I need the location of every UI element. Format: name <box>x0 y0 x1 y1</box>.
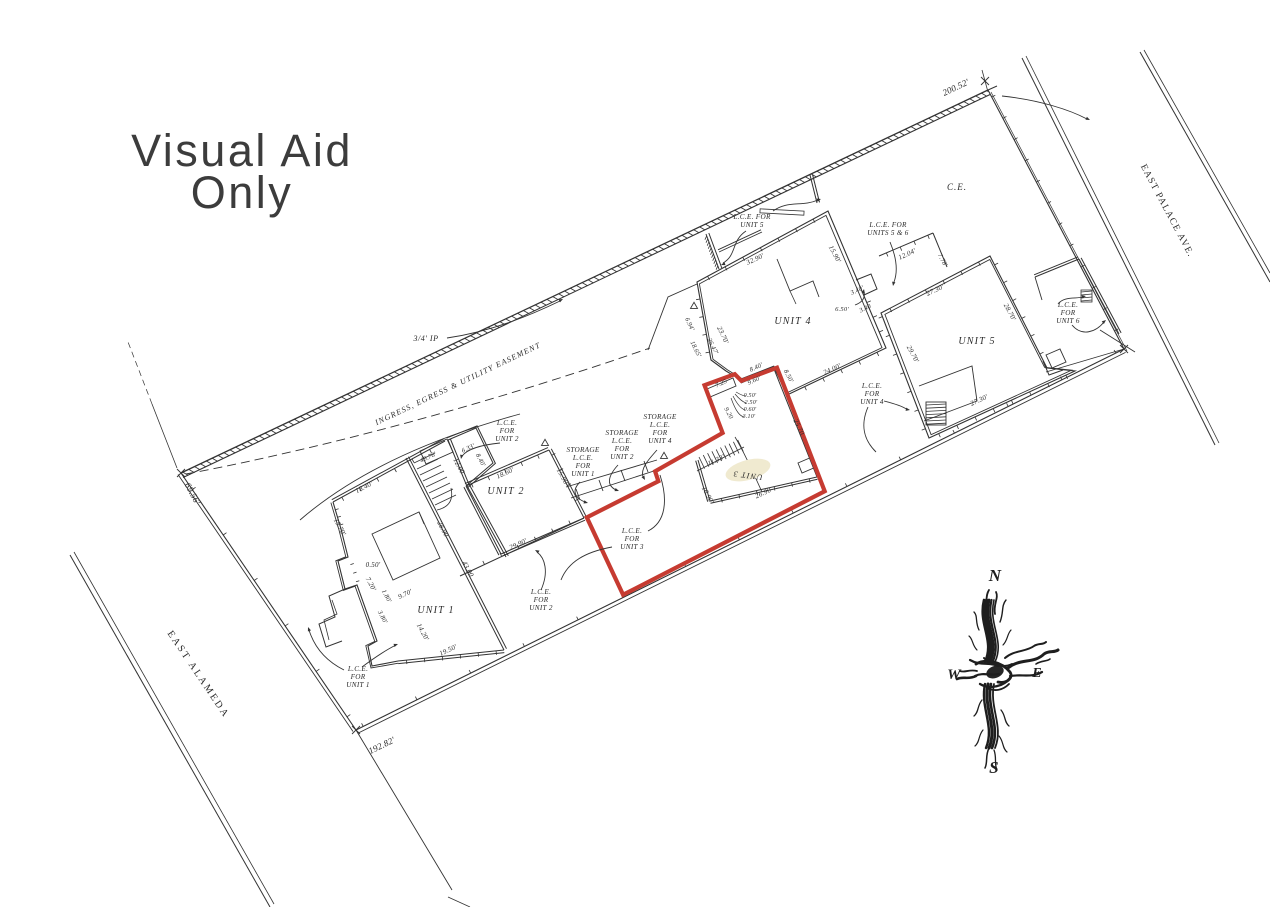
svg-text:L.C.E.: L.C.E. <box>496 419 517 427</box>
svg-text:L.C.E.: L.C.E. <box>649 421 670 429</box>
svg-text:12.04': 12.04' <box>897 247 917 262</box>
svg-text:25.70: 25.70 <box>792 418 807 437</box>
svg-text:0.50': 0.50' <box>744 393 757 399</box>
svg-text:192.82': 192.82' <box>367 734 397 756</box>
svg-text:24.00': 24.00' <box>822 362 842 377</box>
svg-text:6.33': 6.33' <box>461 442 477 454</box>
svg-text:L.C.E.: L.C.E. <box>530 588 551 596</box>
svg-text:9.20: 9.20 <box>722 406 734 421</box>
svg-text:26.47': 26.47' <box>705 337 719 356</box>
svg-text:L.C.E.: L.C.E. <box>572 454 593 462</box>
svg-text:FOR: FOR <box>499 427 515 435</box>
svg-text:18.60': 18.60' <box>495 466 515 481</box>
svg-text:L.C.E.: L.C.E. <box>611 437 632 445</box>
svg-text:UNIT 5: UNIT 5 <box>958 336 995 347</box>
svg-text:26.90: 26.90 <box>754 486 773 500</box>
svg-text:EAST ALAMEDA: EAST ALAMEDA <box>165 629 232 721</box>
svg-text:UNIT 1: UNIT 1 <box>417 605 454 616</box>
svg-text:EAST PALACE AVE.: EAST PALACE AVE. <box>1138 163 1196 259</box>
svg-text:69.56': 69.56' <box>183 481 203 507</box>
svg-text:UNIT 2: UNIT 2 <box>610 453 634 461</box>
svg-text:3/4' IP: 3/4' IP <box>413 334 439 343</box>
svg-text:3.40': 3.40' <box>849 284 866 297</box>
svg-text:L.C.E.: L.C.E. <box>347 665 368 673</box>
svg-text:UNIT 2: UNIT 2 <box>495 435 519 443</box>
svg-text:C.E.: C.E. <box>947 182 967 192</box>
svg-text:2.50': 2.50' <box>745 400 758 406</box>
svg-text:32.90': 32.90' <box>744 252 765 268</box>
svg-text:6.50': 6.50' <box>835 306 849 313</box>
svg-text:UNIT 3: UNIT 3 <box>620 543 644 551</box>
svg-text:L.C.E. FOR: L.C.E. FOR <box>868 221 907 229</box>
svg-text:1.80': 1.80' <box>380 589 393 605</box>
svg-text:E: E <box>1031 666 1042 681</box>
svg-text:FOR: FOR <box>624 535 640 543</box>
svg-text:200.52': 200.52' <box>941 76 971 97</box>
svg-text:UNIT 4: UNIT 4 <box>860 398 884 406</box>
svg-text:L.C.E. FOR: L.C.E. FOR <box>732 213 771 221</box>
svg-text:STORAGE: STORAGE <box>566 446 599 454</box>
svg-text:15.90': 15.90' <box>555 467 571 487</box>
svg-text:23.70': 23.70' <box>715 325 730 345</box>
svg-text:UNIT 4: UNIT 4 <box>774 316 811 327</box>
svg-text:3.80': 3.80' <box>376 609 389 626</box>
svg-text:29.70': 29.70' <box>905 344 921 364</box>
svg-text:FOR: FOR <box>652 429 668 437</box>
svg-text:6.94': 6.94' <box>683 317 696 333</box>
svg-text:9.70': 9.70' <box>397 587 414 601</box>
svg-text:7.20': 7.20' <box>364 576 378 593</box>
svg-text:28.90: 28.90 <box>435 520 450 539</box>
svg-text:14.20': 14.20' <box>415 622 431 642</box>
svg-text:UNIT 1: UNIT 1 <box>571 470 594 478</box>
svg-text:0.50': 0.50' <box>366 561 381 569</box>
svg-text:S: S <box>989 758 999 777</box>
svg-text:UNIT 2: UNIT 2 <box>529 604 553 612</box>
svg-text:L.C.E.: L.C.E. <box>861 382 882 390</box>
svg-text:3.10': 3.10' <box>742 414 756 420</box>
svg-text:W: W <box>947 667 962 683</box>
svg-text:N: N <box>988 566 1002 585</box>
svg-text:0.60': 0.60' <box>744 407 757 413</box>
svg-text:18.65': 18.65' <box>688 340 702 359</box>
svg-text:UNIT 5: UNIT 5 <box>740 221 764 229</box>
svg-text:15.90': 15.90' <box>827 244 843 264</box>
svg-text:UNIT 2: UNIT 2 <box>487 486 524 497</box>
svg-text:L.C.E.: L.C.E. <box>621 527 642 535</box>
svg-text:18.40': 18.40' <box>354 479 374 495</box>
svg-text:UNITS 5 & 6: UNITS 5 & 6 <box>867 229 909 237</box>
svg-text:11.33': 11.33' <box>706 453 726 468</box>
svg-text:8.40': 8.40' <box>474 453 487 469</box>
svg-text:FOR: FOR <box>575 462 591 470</box>
svg-text:FOR: FOR <box>614 445 630 453</box>
svg-text:STORAGE: STORAGE <box>643 413 676 421</box>
svg-text:FOR: FOR <box>350 673 366 681</box>
svg-text:27.30': 27.30' <box>969 393 989 408</box>
svg-text:UNIT 4: UNIT 4 <box>648 437 672 445</box>
svg-text:FOR: FOR <box>533 596 549 604</box>
svg-text:STORAGE: STORAGE <box>605 429 638 437</box>
svg-text:3.40: 3.40 <box>857 303 872 315</box>
svg-text:27.30': 27.30' <box>925 283 945 298</box>
svg-text:UNIT 1: UNIT 1 <box>346 681 369 689</box>
svg-text:FOR: FOR <box>864 390 880 398</box>
svg-text:15.70': 15.70' <box>332 517 348 537</box>
svg-text:FOR: FOR <box>1060 309 1076 317</box>
svg-text:UNIT 6: UNIT 6 <box>1056 317 1080 325</box>
svg-text:16.90': 16.90' <box>700 485 716 505</box>
